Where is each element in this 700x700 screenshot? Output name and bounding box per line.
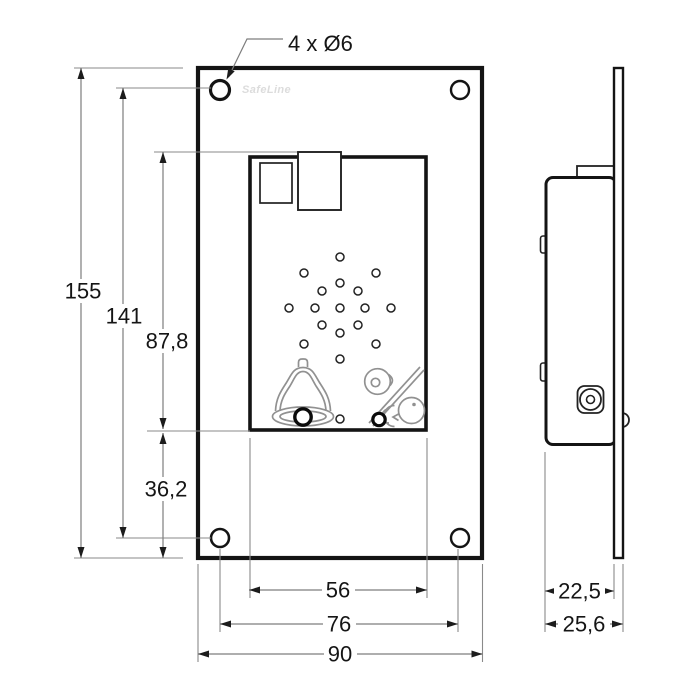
dim-label-overall-width: 90 xyxy=(328,642,352,667)
speaker-hole xyxy=(285,304,293,312)
mounting-hole-bottom-left xyxy=(211,529,229,547)
dim-label-overall-height: 155 xyxy=(65,279,102,304)
speaker-hole xyxy=(311,304,319,312)
speaker-hole xyxy=(336,253,344,261)
drawing-canvas: SafeLine xyxy=(0,0,700,700)
face-plate-profile xyxy=(614,68,623,558)
mounting-hole-top-left xyxy=(211,81,230,100)
speaker-hole xyxy=(336,355,344,363)
terminal-block-large xyxy=(298,152,341,210)
mounting-hole-top-right xyxy=(451,81,469,99)
arrowhead xyxy=(472,651,483,658)
dim-label-total-depth: 25,6 xyxy=(563,612,606,637)
cable-gland-hole xyxy=(587,396,595,404)
arrowhead xyxy=(416,587,427,594)
alarm-button[interactable] xyxy=(295,409,311,425)
arrowhead xyxy=(78,547,85,558)
side-view xyxy=(541,68,630,558)
dim-label-bottom-offset: 36,2 xyxy=(145,477,188,502)
mounting-hole-bottom-right xyxy=(451,529,469,547)
speaker-hole xyxy=(336,304,344,312)
speaker-hole xyxy=(336,279,344,287)
arrowhead xyxy=(160,433,167,444)
safeline-mounting-drawing: SafeLine xyxy=(0,0,700,700)
dim-label-hole-pitch-h: 76 xyxy=(327,612,351,637)
speaker-hole xyxy=(372,269,380,277)
arrowhead xyxy=(545,621,556,628)
dim-label-inner-width: 56 xyxy=(326,578,350,603)
speaker-hole xyxy=(300,269,308,277)
speaker-hole xyxy=(387,304,395,312)
brand-watermark: SafeLine xyxy=(242,84,291,96)
dim-label-enclosure-depth: 22,5 xyxy=(558,579,601,604)
microphone-hole xyxy=(336,415,344,423)
speaker-hole xyxy=(354,287,362,295)
dim-label-inner-height: 87,8 xyxy=(146,329,189,354)
speaker-hole xyxy=(318,287,326,295)
arrowhead xyxy=(160,152,167,163)
terminal-block-small xyxy=(260,163,292,203)
arrowhead xyxy=(249,587,260,594)
speaker-hole xyxy=(336,329,344,337)
arrowhead xyxy=(78,68,85,79)
arrowhead xyxy=(160,547,167,558)
arrowhead xyxy=(220,621,231,628)
speaker-hole xyxy=(354,321,362,329)
arrowhead xyxy=(120,527,127,538)
indicator-led xyxy=(373,413,385,425)
speaker-hole xyxy=(361,304,369,312)
front-view: SafeLine xyxy=(198,68,482,558)
speaker-hole xyxy=(318,321,326,329)
arrowhead xyxy=(447,621,458,628)
speaker-hole xyxy=(300,340,308,348)
hole-callout-label: 4 x Ø6 xyxy=(288,31,353,56)
speaker-hole xyxy=(372,340,380,348)
dim-label-hole-pitch-v: 141 xyxy=(106,304,143,329)
arrowhead xyxy=(612,621,623,628)
arrowhead xyxy=(120,88,127,99)
arrowhead xyxy=(198,651,209,658)
passenger-eye-icon xyxy=(412,403,416,407)
arrowhead xyxy=(160,418,167,429)
